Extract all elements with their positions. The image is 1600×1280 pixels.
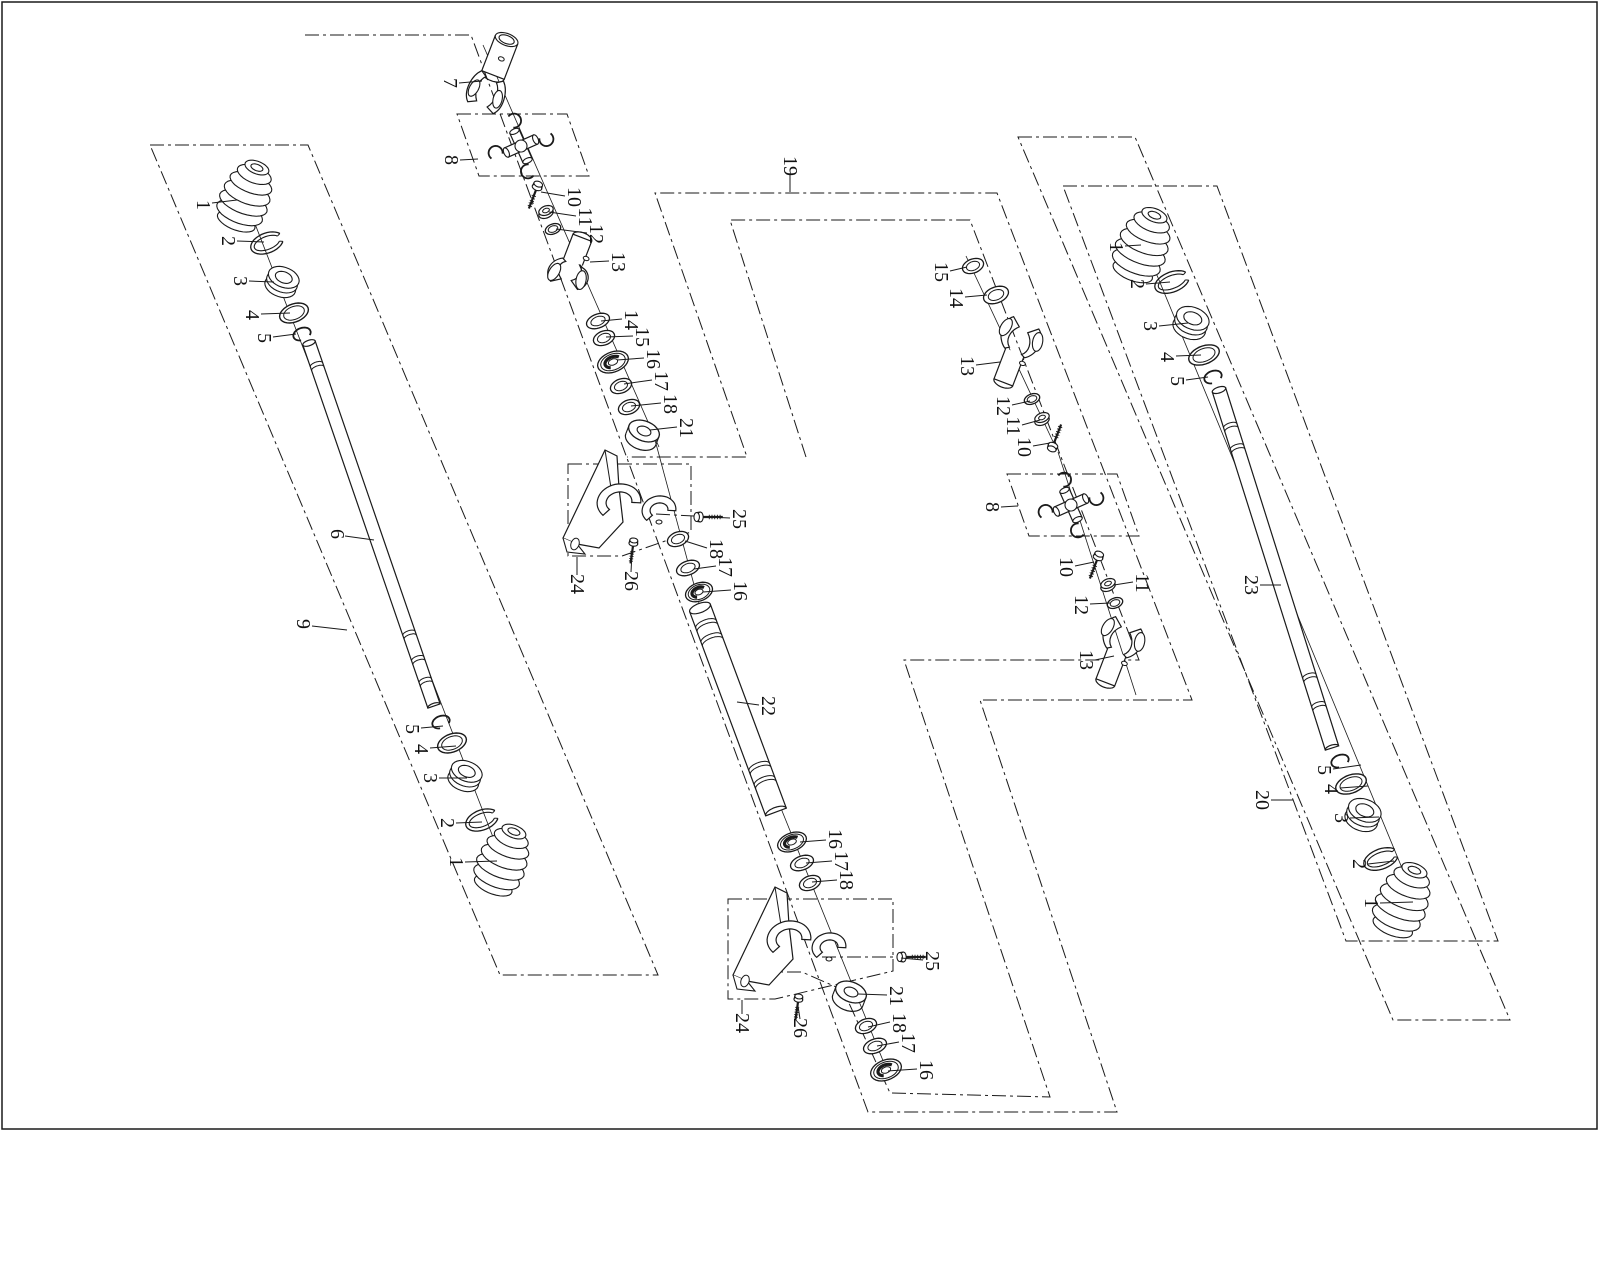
part-callout-18: 18 [659,394,681,414]
part-callout-2: 2 [217,236,239,246]
part-callout-4: 4 [1320,784,1342,794]
part-callout-1: 1 [1360,898,1382,908]
part-callout-17: 17 [830,851,852,871]
line [794,1014,798,1015]
part-callout-17: 17 [897,1033,919,1053]
parts-catalog-page: 1234569543217810111213141516171821242625… [0,0,1600,1280]
part-callout-5: 5 [1313,765,1335,775]
part-callout-3: 3 [1330,813,1352,823]
part-callout-7: 7 [439,78,461,88]
ellipse [897,953,902,962]
part-callout-19: 19 [779,156,801,176]
part-callout-3: 3 [1139,321,1161,331]
part-callout-11: 11 [1131,573,1153,592]
part-callout-4: 4 [1156,352,1178,362]
line [795,1012,799,1013]
part-callout-12: 12 [585,224,607,244]
ellipse [1039,415,1046,420]
ellipse [694,513,699,522]
part-callout-26: 26 [620,571,642,591]
ellipse [656,520,662,524]
part-callout-23: 23 [1240,575,1262,595]
part-callout-8: 8 [440,155,462,165]
part-callout-25: 25 [921,951,943,971]
part-callout-17: 17 [650,371,672,391]
part-callout-21: 21 [885,986,907,1006]
part-callout-1: 1 [192,200,214,210]
part-callout-3: 3 [419,773,441,783]
ellipse [1105,581,1112,586]
part-callout-1: 1 [1105,242,1127,252]
part-callout-22: 22 [757,696,779,716]
part-callout-2: 2 [1126,279,1148,289]
part-callout-2: 2 [1348,859,1370,869]
part-callout-9: 9 [292,619,314,629]
part-callout-1: 1 [445,857,467,867]
part-callout-12: 12 [1070,595,1092,615]
line [629,561,633,562]
part-callout-8: 8 [981,502,1003,512]
part-callout-12: 12 [992,396,1014,416]
part-callout-16: 16 [729,581,751,601]
part-callout-4: 4 [241,310,263,320]
part-callout-10: 10 [1013,437,1035,457]
line [637,541,638,544]
line [630,551,634,552]
part-callout-18: 18 [835,870,857,890]
part-callout-16: 16 [915,1060,937,1080]
part-callout-13: 13 [956,356,978,376]
line [802,997,803,1000]
part-callout-17: 17 [714,557,736,577]
part-callout-13: 13 [607,252,629,272]
part-callout-6: 6 [326,529,348,539]
ellipse [543,208,550,213]
part-callout-25: 25 [728,509,750,529]
part-callout-5: 5 [253,333,275,343]
part-callout-10: 10 [1055,557,1077,577]
part-callout-3: 3 [229,276,251,286]
part-callout-5: 5 [1166,376,1188,386]
part-callout-15: 15 [631,327,653,347]
ellipse [826,957,832,961]
part-callout-14: 14 [945,288,967,308]
part-callout-24: 24 [566,574,588,594]
part-callout-5: 5 [401,724,423,734]
part-callout-11: 11 [1002,416,1024,435]
part-callout-2: 2 [436,818,458,828]
part-callout-21: 21 [675,418,697,438]
part-callout-18: 18 [888,1013,910,1033]
part-callout-10: 10 [563,187,585,207]
part-callout-4: 4 [410,744,432,754]
part-callout-16: 16 [642,349,664,369]
part-callout-24: 24 [731,1013,753,1033]
exploded-parts-diagram: 1234569543217810111213141516171821242625… [0,0,1600,1280]
part-callout-13: 13 [1075,650,1097,670]
part-callout-26: 26 [789,1018,811,1038]
part-callout-20: 20 [1251,790,1273,810]
part-callout-16: 16 [824,829,846,849]
part-callout-18: 18 [705,539,727,559]
part-callout-15: 15 [930,262,952,282]
